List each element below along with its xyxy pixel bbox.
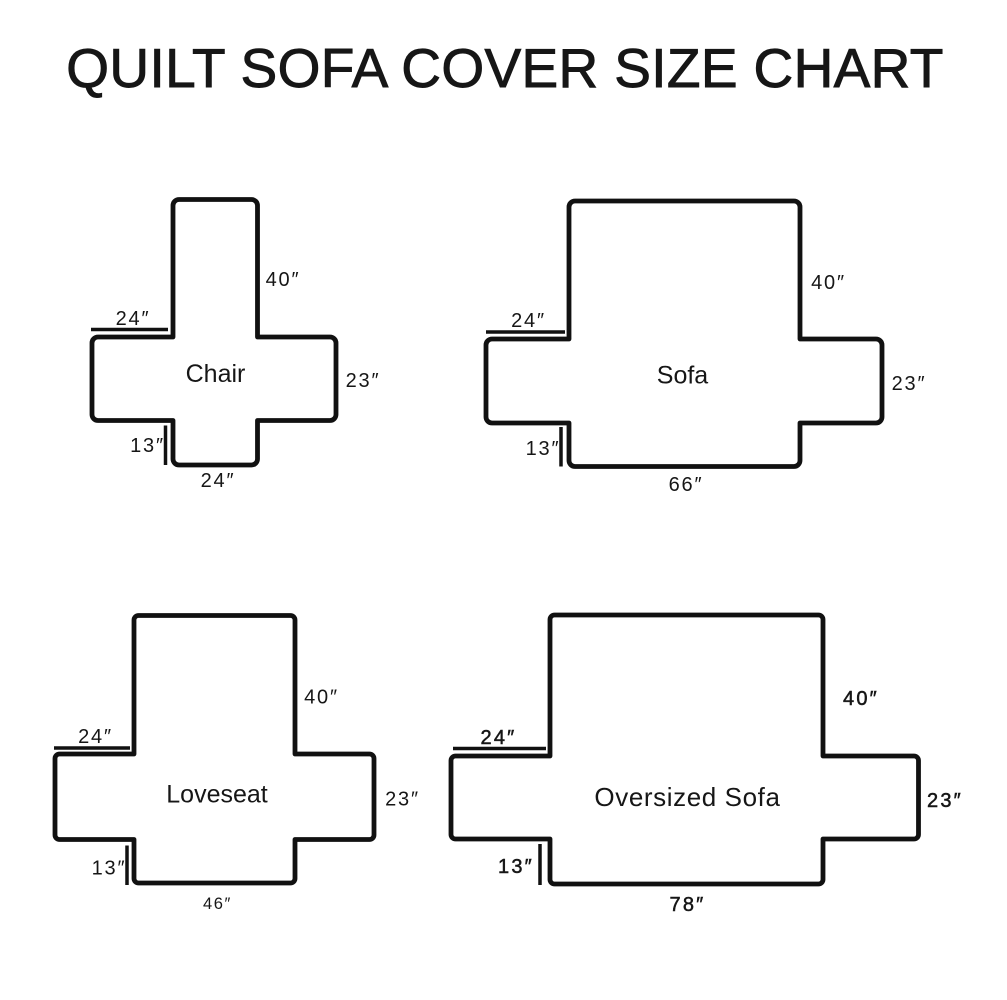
svg-text:24″: 24″ (78, 726, 113, 748)
svg-text:QUILT SOFA COVER SIZE CHART: QUILT SOFA COVER SIZE CHART (66, 37, 943, 99)
svg-text:13″: 13″ (130, 435, 165, 457)
svg-text:13″: 13″ (526, 438, 561, 460)
svg-text:Sofa: Sofa (657, 362, 709, 390)
svg-text:40″: 40″ (843, 688, 879, 710)
svg-text:40″: 40″ (304, 687, 339, 709)
svg-text:23″: 23″ (385, 789, 420, 811)
svg-text:23″: 23″ (927, 790, 963, 812)
svg-text:46″: 46″ (203, 895, 232, 913)
svg-text:24″: 24″ (511, 310, 546, 332)
svg-text:13″: 13″ (92, 858, 127, 880)
svg-text:23″: 23″ (346, 370, 381, 392)
svg-text:Oversized Sofa: Oversized Sofa (594, 782, 780, 812)
svg-text:Chair: Chair (186, 360, 246, 388)
svg-text:23″: 23″ (892, 373, 927, 395)
svg-text:24″: 24″ (481, 727, 517, 749)
svg-text:40″: 40″ (811, 272, 846, 294)
svg-text:24″: 24″ (116, 308, 151, 330)
svg-text:Loveseat: Loveseat (166, 781, 268, 809)
svg-text:66″: 66″ (669, 474, 704, 496)
svg-text:24″: 24″ (201, 470, 236, 492)
svg-text:40″: 40″ (266, 269, 301, 291)
svg-text:13″: 13″ (498, 856, 534, 878)
svg-text:78″: 78″ (670, 894, 706, 916)
